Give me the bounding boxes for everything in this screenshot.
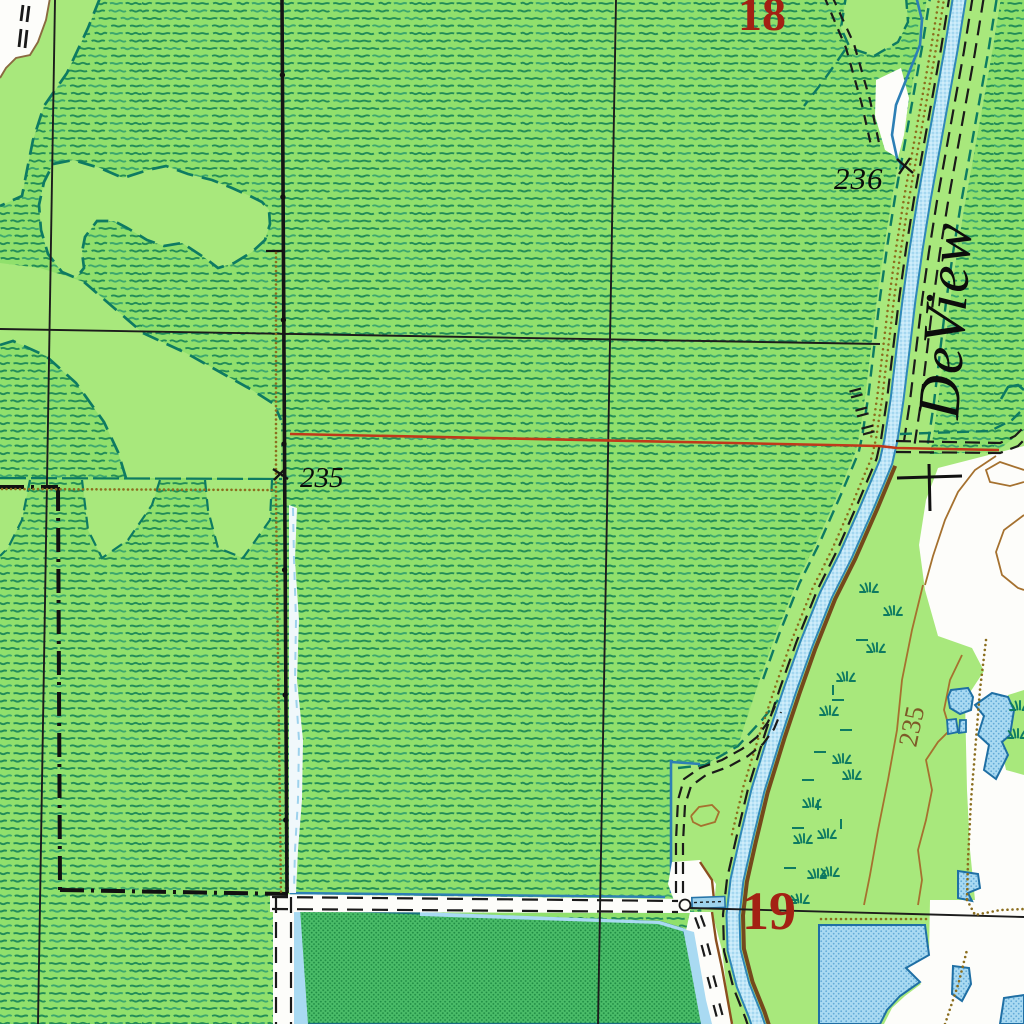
svg-text:DeView: DeView: [905, 219, 985, 422]
svg-text:235: 235: [300, 462, 344, 494]
svg-text:18: 18: [738, 0, 786, 41]
svg-text:236: 236: [834, 161, 884, 196]
svg-text:19: 19: [742, 881, 796, 941]
